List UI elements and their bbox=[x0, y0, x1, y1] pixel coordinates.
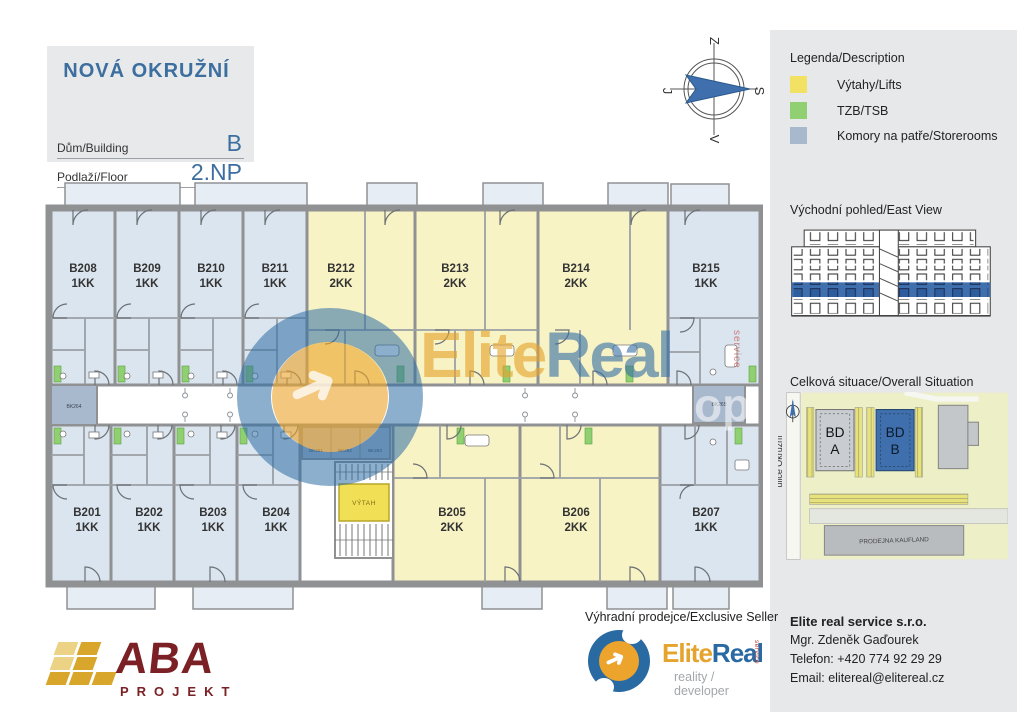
brand-tagline: reality / developer bbox=[674, 670, 768, 698]
site-plan: PRODEJNA KAUFLAND BD A BD B ulice Okružn… bbox=[778, 392, 1008, 560]
legend-title: Legenda/Description bbox=[790, 51, 905, 65]
elitereal-logo-icon: ➜ bbox=[588, 630, 650, 692]
aba-subtitle: PROJEKT bbox=[120, 684, 237, 699]
floor-plan: BK264 BK265 BK261 BK262 BK263 VÝTAH bbox=[45, 180, 763, 617]
unit-type: 1KK bbox=[137, 522, 161, 534]
building-a bbox=[816, 410, 854, 471]
unit-type: 1KK bbox=[694, 522, 718, 534]
logo-notch bbox=[594, 678, 614, 696]
unit-type: 2KK bbox=[440, 522, 464, 534]
info-panel: Legenda/Description Výtahy/Lifts TZB/TSB… bbox=[770, 30, 1017, 712]
compass-west-label: Z bbox=[707, 37, 722, 45]
contact-block: Elite real service s.r.o. Mgr. Zdeněk Ga… bbox=[790, 612, 944, 688]
contact-phone[interactable]: Telefon: +420 774 92 29 29 bbox=[790, 650, 944, 669]
building-value: B bbox=[227, 130, 242, 157]
situation-map: PRODEJNA KAUFLAND BD A BD B ulice Okružn… bbox=[778, 392, 1008, 565]
bd-a-label-1: BD bbox=[825, 425, 844, 440]
unit-id: B202 bbox=[135, 507, 163, 519]
compass-south-label: J bbox=[662, 88, 675, 95]
unit-id: B207 bbox=[692, 507, 720, 519]
unit-id: B205 bbox=[438, 507, 466, 519]
east-view-title: Východní pohled/East View bbox=[790, 203, 942, 217]
unit-type: 1KK bbox=[201, 522, 225, 534]
unit-type: 2KK bbox=[443, 278, 467, 290]
lift-label: VÝTAH bbox=[352, 498, 376, 507]
storeroom-color-swatch bbox=[790, 127, 807, 144]
project-title: NOVÁ OKRUŽNÍ bbox=[47, 60, 246, 83]
legend-label: Komory na patře/Storerooms bbox=[837, 129, 998, 143]
unit-type: 1KK bbox=[135, 278, 159, 290]
building-row: Dům/Building B bbox=[57, 130, 244, 159]
corridor bbox=[51, 385, 760, 425]
unit-type: 2KK bbox=[329, 278, 353, 290]
storeroom-label: BK264 bbox=[66, 404, 81, 410]
unit-id: B206 bbox=[562, 507, 590, 519]
floorplan-sheet: NOVÁ OKRUŽNÍ Dům/Building B Podlaží/Floo… bbox=[0, 0, 1024, 724]
unit-type: 2KK bbox=[564, 278, 588, 290]
exclusive-seller-caption: Výhradní prodejce/Exclusive Seller bbox=[585, 610, 778, 624]
compass-rose: Z S V J bbox=[662, 33, 766, 150]
elitereal-wordmark: EliteReal bbox=[662, 638, 763, 669]
situation-title: Celková situace/Overall Situation bbox=[790, 375, 973, 389]
tzb-color-swatch bbox=[790, 102, 807, 119]
compass-icon: Z S V J bbox=[662, 33, 766, 145]
unit-type: 1KK bbox=[199, 278, 223, 290]
building-label: Dům/Building bbox=[57, 141, 128, 155]
unit-id: B214 bbox=[562, 263, 590, 275]
floor-plan-drawing: BK264 BK265 BK261 BK262 BK263 VÝTAH bbox=[45, 180, 763, 612]
storeroom-label: BK261 bbox=[309, 448, 323, 453]
contact-email[interactable]: Email: elitereal@elitereal.cz bbox=[790, 669, 944, 688]
storeroom-label: BK262 bbox=[338, 448, 352, 453]
legend-label: Výtahy/Lifts bbox=[837, 78, 902, 92]
company-name: Elite real service s.r.o. bbox=[790, 612, 944, 631]
street-label: ulice Okružní bbox=[778, 435, 784, 488]
unit-id: B212 bbox=[327, 263, 355, 275]
unit-id: B203 bbox=[199, 507, 227, 519]
unit-id: B208 bbox=[69, 263, 97, 275]
compass-north-label: S bbox=[752, 87, 766, 96]
bd-b-label-1: BD bbox=[886, 425, 905, 440]
contact-person: Mgr. Zdeněk Gaďourek bbox=[790, 631, 944, 650]
aba-projekt-logo: ABA PROJEKT bbox=[40, 640, 230, 706]
unit-id: B204 bbox=[262, 507, 290, 519]
unit-type: 1KK bbox=[75, 522, 99, 534]
unit-id: B210 bbox=[197, 263, 225, 275]
brand-elite: Elite bbox=[662, 638, 712, 668]
unit-id: B201 bbox=[73, 507, 101, 519]
unit-id: B215 bbox=[692, 263, 720, 275]
unit-id: B211 bbox=[262, 263, 289, 275]
elitereal-logo: ➜ EliteReal service reality / developer bbox=[588, 630, 768, 702]
bd-a-label-2: A bbox=[830, 442, 840, 457]
east-view-drawing bbox=[786, 228, 998, 325]
lift-color-swatch bbox=[790, 76, 807, 93]
unit-type: 1KK bbox=[694, 278, 718, 290]
staircase: VÝTAH bbox=[335, 462, 393, 558]
storeroom-label: BK263 bbox=[368, 448, 382, 453]
title-block: NOVÁ OKRUŽNÍ Dům/Building B Podlaží/Floo… bbox=[47, 46, 254, 162]
unit-type: 1KK bbox=[263, 278, 287, 290]
unit-id: B213 bbox=[441, 263, 469, 275]
unit-type: 1KK bbox=[264, 522, 288, 534]
compass-east-label: V bbox=[707, 135, 722, 144]
aba-name: ABA bbox=[113, 634, 217, 684]
unit-type: 1KK bbox=[71, 278, 95, 290]
legend-label: TZB/TSB bbox=[837, 104, 888, 118]
bd-b-label-2: B bbox=[891, 442, 900, 457]
unit-id: B209 bbox=[133, 263, 161, 275]
building-b bbox=[876, 410, 914, 471]
unit-type: 2KK bbox=[564, 522, 588, 534]
storeroom-label: BK265 bbox=[711, 402, 726, 408]
brand-service: service bbox=[753, 640, 760, 664]
east-elevation bbox=[786, 228, 998, 320]
